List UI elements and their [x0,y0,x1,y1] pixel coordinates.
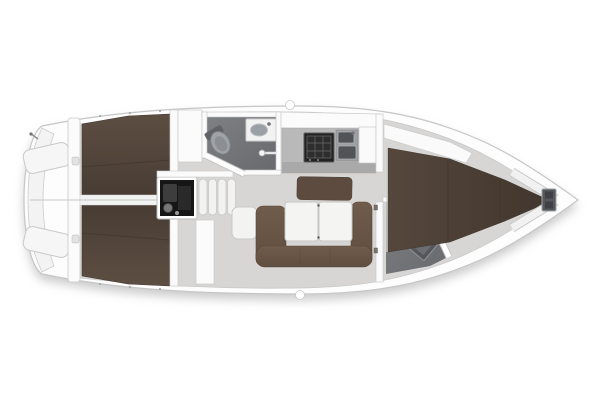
deck-notch [296,291,305,300]
counter-front [282,162,376,173]
stove-knob [317,159,319,161]
double-sink-icon [336,130,358,161]
companionway-sill [157,171,233,177]
head-wall-top [202,112,281,117]
table-hinge [317,204,319,206]
faucet [267,122,271,126]
head-wall-bottom [242,170,281,175]
engine-pulley [164,204,173,213]
nav-seat [232,207,257,239]
table-leaf-left [285,202,318,241]
washbasin-icon [246,119,276,141]
transom-latch [72,235,79,243]
stanchion [99,283,101,285]
table-leaf-right [319,202,352,241]
stove-icon [304,133,334,162]
stanchion [99,115,101,117]
galley [281,112,380,173]
door-hinge [374,205,378,210]
wardrobe-locker [178,110,202,162]
locker-bin [545,202,553,209]
engine-compartment [157,177,197,219]
basin [251,124,268,136]
faucet [351,131,354,134]
sink-basin [338,146,356,159]
step [209,179,217,215]
stanchion [159,288,161,290]
folding-table [285,202,352,241]
locker-bin [545,192,553,199]
aft-bulkhead-bottom [170,218,178,286]
table-hinge [317,236,319,238]
yacht-floorplan [0,0,600,400]
galley-cabinet [359,127,376,163]
engine-pulley [175,211,179,215]
door-hinge [374,248,378,253]
yacht-floorplan-canvas [0,0,600,400]
settee-backrest [297,177,352,201]
stove-top [307,136,331,158]
step [199,179,207,215]
engine-part [178,186,191,210]
stanchion [129,112,131,114]
transom-latch [72,157,79,165]
step [218,179,226,215]
engine-part [163,184,177,202]
head-wall-right [276,112,281,175]
aft-bulkhead-top [170,110,178,178]
stowage-locker [196,220,214,284]
fwd-bulkhead-top [376,114,383,172]
stanchion [159,110,161,112]
sofa-bottom [256,246,372,267]
fwd-bulkhead-bottom [376,202,383,282]
stanchion [129,286,131,288]
deck-notch [286,101,295,110]
stove-knob [309,159,311,161]
